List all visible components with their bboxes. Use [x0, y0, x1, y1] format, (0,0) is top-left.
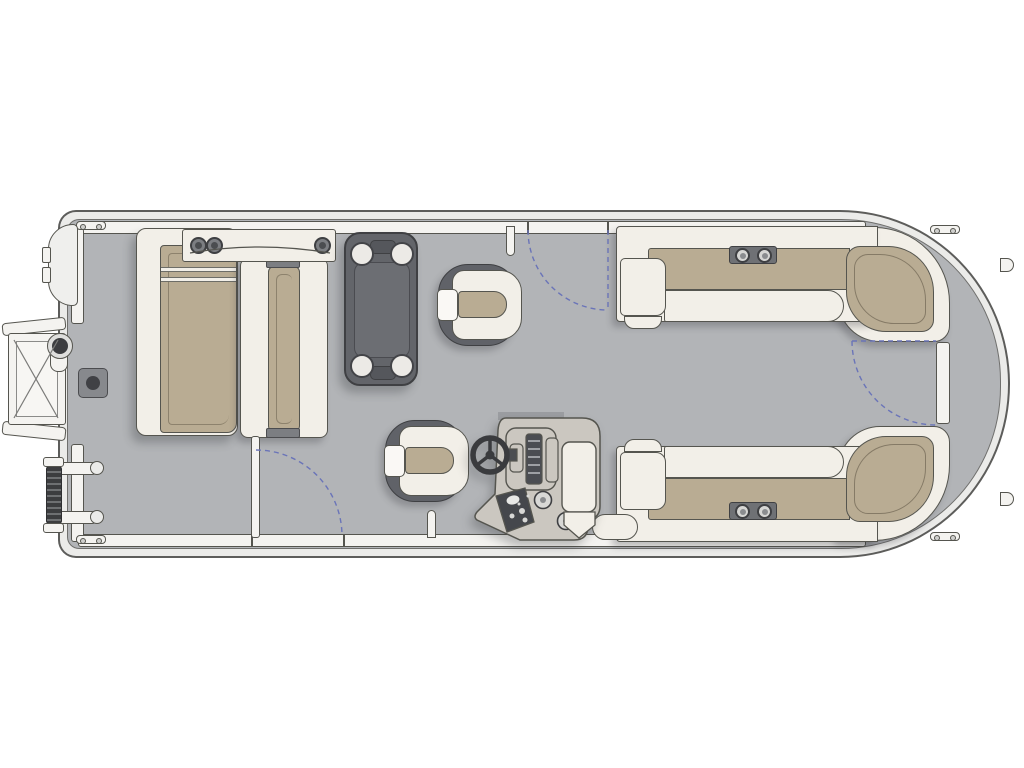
pontoon-floorplan-diagram — [0, 0, 1024, 768]
bow-gate-swing-arc — [852, 341, 936, 425]
armrest-panel-curve — [190, 247, 330, 253]
platform-brace — [14, 340, 58, 418]
starboard-gate-swing-arc — [528, 230, 608, 310]
gate-swing-overlay — [0, 0, 1024, 768]
port-gate-swing-arc — [256, 450, 342, 536]
